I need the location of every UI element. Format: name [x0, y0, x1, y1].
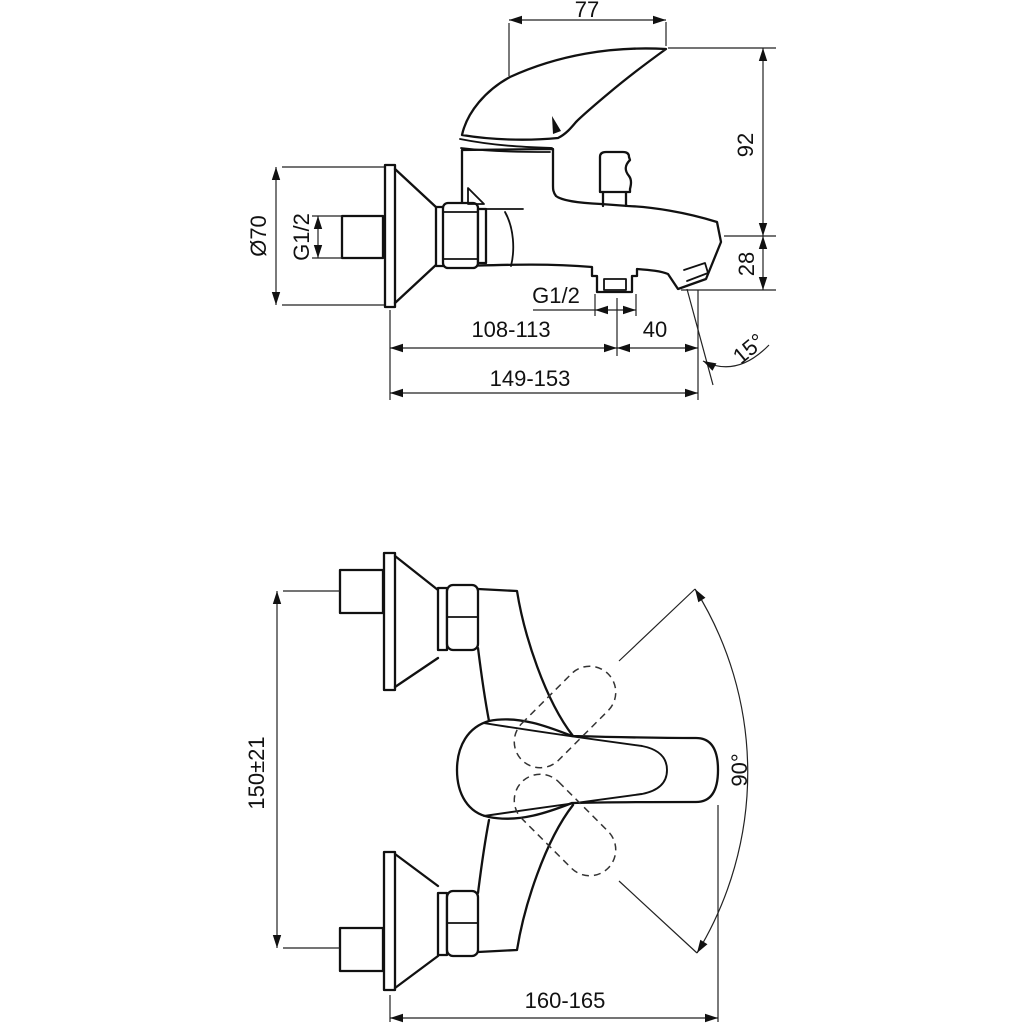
dim-outlet-to-spout: 40	[643, 319, 667, 341]
dim-outlet-thread: G1/2	[532, 285, 580, 307]
technical-drawing-page: 77 92 28 Ø70 G1/2 G1/2 108-113 40 149-15…	[0, 0, 1024, 1024]
dim-handle-width: 77	[575, 0, 599, 21]
faucet-dimension-drawing	[0, 0, 1024, 1024]
dim-height-above-spout: 92	[735, 133, 757, 157]
dim-total-depth: 160-165	[525, 990, 606, 1012]
plan-view-linework	[340, 553, 718, 990]
dim-inlet-thread: G1/2	[291, 213, 313, 261]
dim-inlet-spacing: 150±21	[246, 736, 268, 809]
dim-wall-to-outlet: 108-113	[471, 319, 550, 341]
dim-wall-to-spout: 149-153	[490, 368, 571, 390]
dim-spout-drop: 28	[736, 252, 758, 276]
side-view-linework	[342, 48, 721, 307]
dim-handle-swing-angle: 90°	[729, 753, 751, 786]
dim-flange-diameter: Ø70	[248, 215, 270, 257]
